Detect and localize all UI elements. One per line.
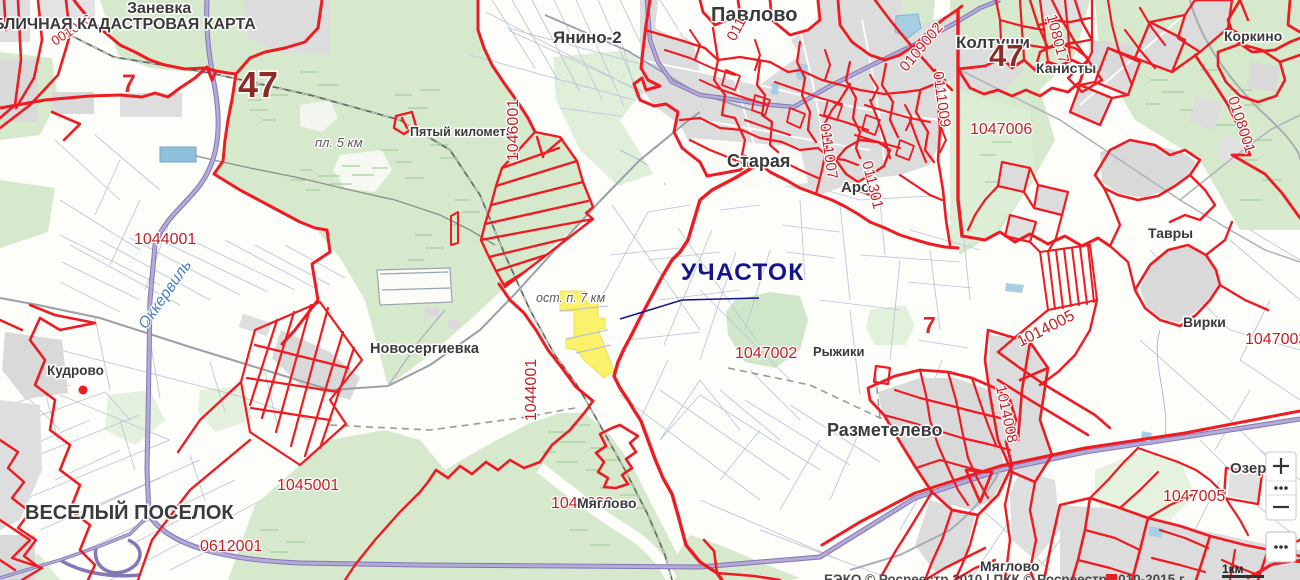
svg-text:УЧАСТОК: УЧАСТОК [681,259,804,286]
svg-text:Павлово: Павлово [711,4,797,26]
svg-text:Разметелево: Разметелево [827,420,942,440]
svg-text:47: 47 [238,64,278,105]
svg-text:1047003: 1047003 [1245,331,1300,348]
svg-text:Янино-2: Янино-2 [553,28,622,47]
svg-text:пл. 5 км: пл. 5 км [315,135,363,150]
svg-text:1км: 1км [1222,562,1244,576]
svg-text:Пятый километр: Пятый километр [410,125,514,139]
svg-text:Кудрово: Кудрово [47,363,104,378]
svg-text:47: 47 [989,38,1023,73]
svg-text:7: 7 [122,70,136,98]
svg-text:ост. п. 7 км: ост. п. 7 км [536,291,606,305]
svg-text:БЛИЧНАЯ КАДАСТРОВАЯ КАРТА: БЛИЧНАЯ КАДАСТРОВАЯ КАРТА [0,16,256,33]
svg-text:Рыжики: Рыжики [813,344,864,359]
svg-text:7: 7 [923,312,936,338]
svg-text:Коркино: Коркино [1224,28,1282,44]
svg-text:ВЕСЕЛЫЙ ПОСЕЛОК: ВЕСЕЛЫЙ ПОСЕЛОК [25,500,234,524]
svg-text:1044001: 1044001 [134,231,196,248]
svg-text:1047005: 1047005 [1163,488,1225,505]
svg-text:Вирки: Вирки [1183,314,1226,330]
svg-text:Старая: Старая [727,151,790,171]
svg-text:Новосергиевка: Новосергиевка [370,341,480,357]
svg-text:1047002: 1047002 [735,345,797,362]
svg-text:1044001: 1044001 [523,359,540,421]
svg-text:Мяглово: Мяглово [577,495,637,511]
svg-text:Заневка: Заневка [127,0,191,17]
svg-text:Тавры: Тавры [1148,225,1193,241]
svg-text:1045001: 1045001 [277,477,339,494]
svg-text:ЕЭКО © Росреестр 2010 | ПКК ©: ЕЭКО © Росреестр 2010 | ПКК © Росреестр … [824,572,1187,580]
svg-text:1046001: 1046001 [505,99,522,161]
svg-text:1047006: 1047006 [970,121,1032,138]
svg-text:0612001: 0612001 [200,538,262,555]
